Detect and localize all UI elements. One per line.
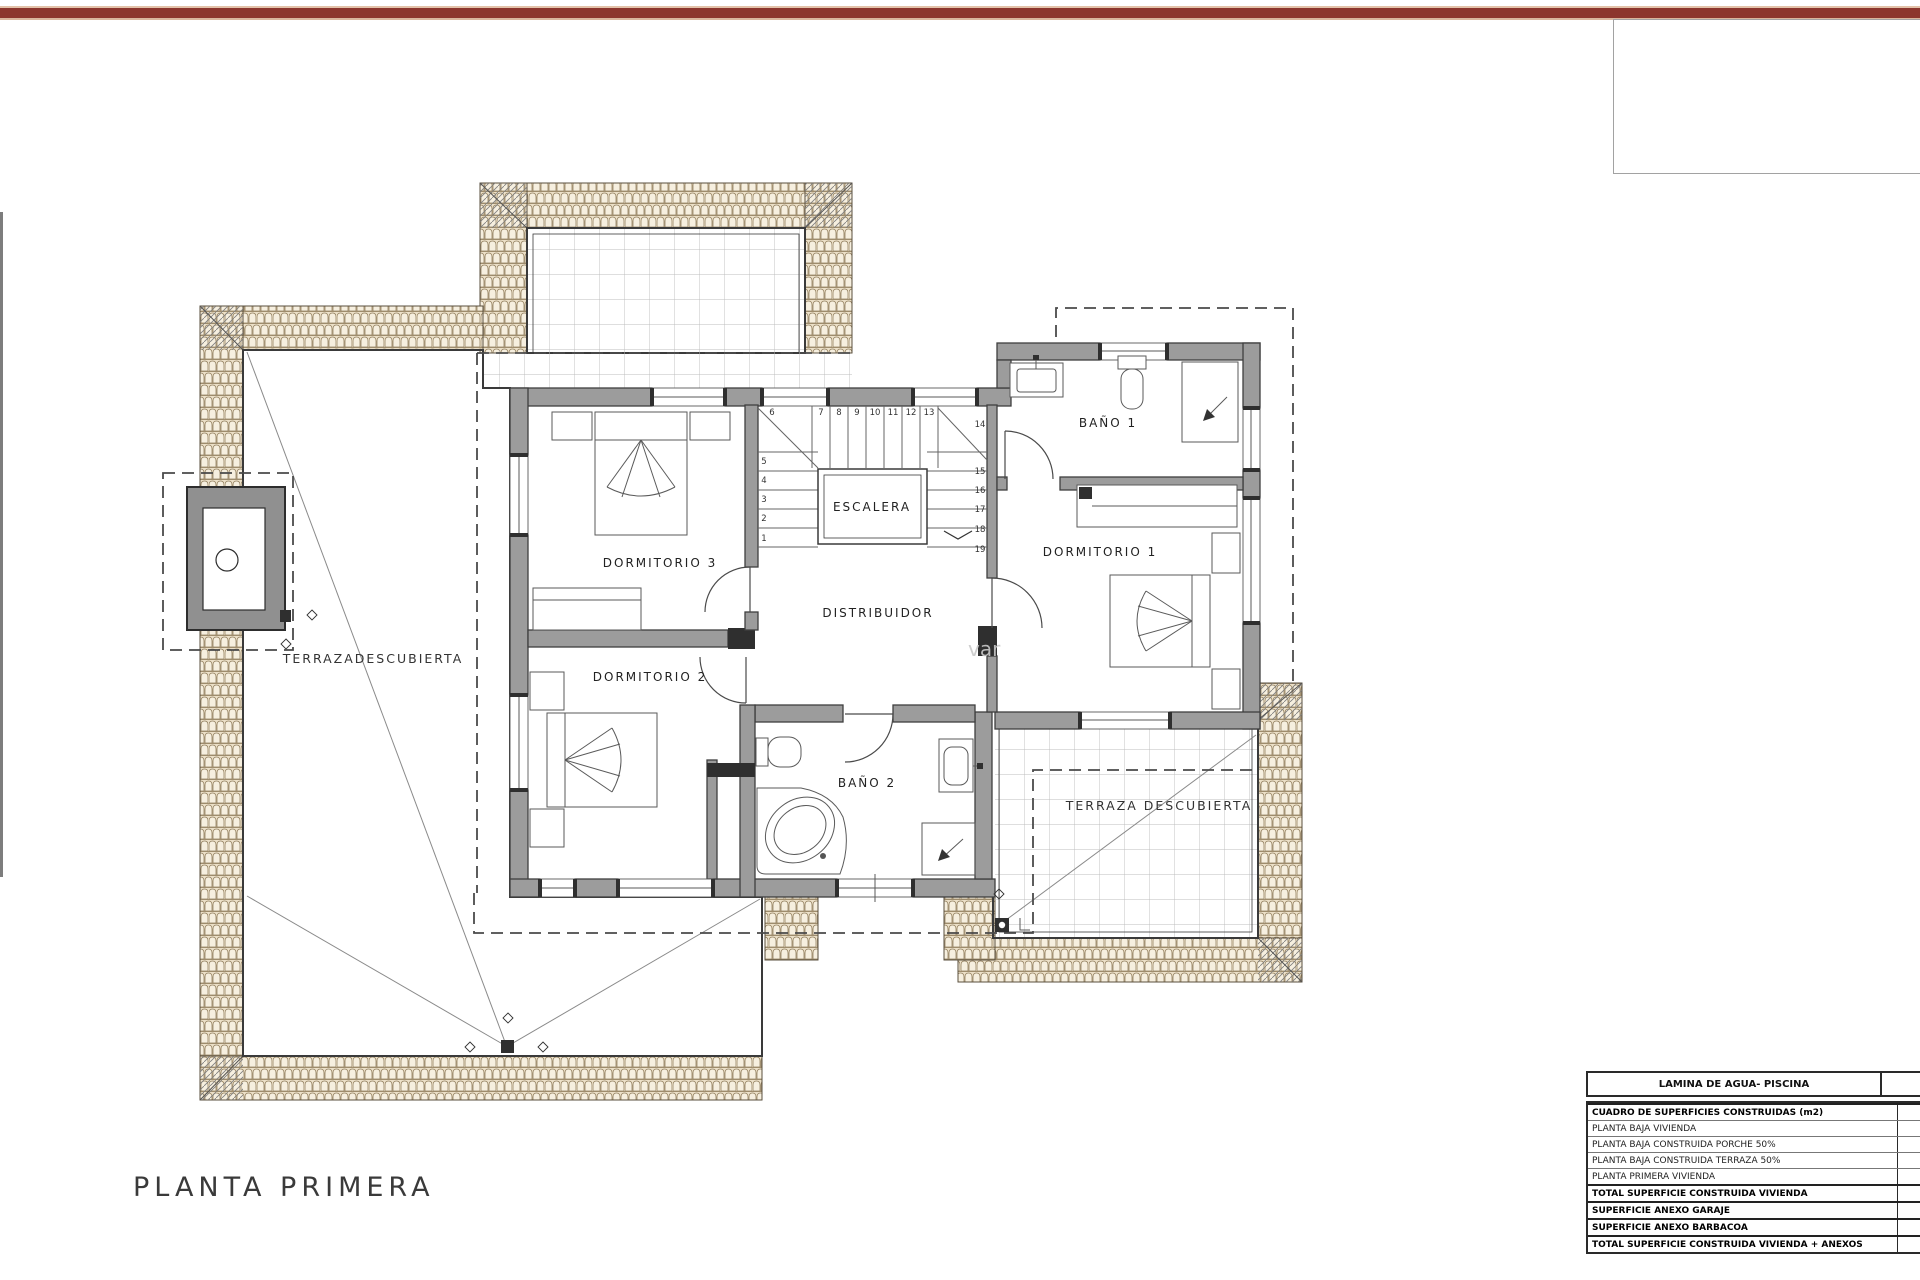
table-row-label: PLANTA BAJA CONSTRUIDA TERRAZA 50% — [1592, 1156, 1780, 1166]
built-surfaces-table: CUADRO DE SUPERFICIES CONSTRUIDAS (m2) P… — [1586, 1101, 1920, 1254]
stair-num: 3 — [761, 495, 766, 505]
table-row: PLANTA BAJA CONSTRUIDA TERRAZA 50% — [1588, 1152, 1920, 1168]
stair-num: 9 — [854, 408, 859, 418]
cabinet-dormitorio3 — [533, 588, 641, 630]
stair-num: 7 — [818, 408, 823, 418]
table-row: CUADRO DE SUPERFICIES CONSTRUIDAS (m2) — [1588, 1103, 1920, 1120]
toilet-icon — [756, 737, 801, 767]
table-row-label: PLANTA BAJA VIVIENDA — [1592, 1124, 1696, 1134]
table-row-label: TOTAL SUPERFICIE CONSTRUIDA VIVIENDA + A… — [1592, 1240, 1863, 1250]
pool-surface-label: LAMINA DE AGUA- PISCINA — [1588, 1073, 1880, 1095]
watermark-text: var — [968, 637, 1001, 661]
stair-num: 11 — [888, 408, 899, 418]
table-row-label: PLANTA PRIMERA VIVIENDA — [1592, 1172, 1715, 1182]
stair-num: 19 — [975, 545, 986, 555]
table-row: PLANTA BAJA CONSTRUIDA PORCHE 50% — [1588, 1136, 1920, 1152]
toilet-icon — [1118, 356, 1146, 409]
table-row: PLANTA BAJA VIVIENDA — [1588, 1120, 1920, 1136]
table-row: SUPERFICIE ANEXO BARBACOA — [1588, 1218, 1920, 1235]
room-label-bano1: BAÑO 1 — [1079, 415, 1137, 430]
stair-num: 8 — [836, 408, 841, 418]
stair-num: 4 — [761, 476, 766, 486]
table-row: SUPERFICIE ANEXO GARAJE — [1588, 1201, 1920, 1218]
wardrobe-dormitorio1 — [1077, 485, 1237, 527]
stair-num: 17 — [975, 505, 986, 515]
chimney-structure — [187, 487, 285, 630]
room-label-bano2: BAÑO 2 — [838, 775, 896, 790]
stair-num: 18 — [975, 525, 986, 535]
table-row-label: SUPERFICIE ANEXO BARBACOA — [1592, 1223, 1748, 1233]
page-title: PLANTA PRIMERA — [133, 1172, 435, 1203]
stair-num: 16 — [975, 486, 986, 496]
stair-num: 14 — [975, 420, 986, 430]
stair-num: 15 — [975, 467, 986, 477]
room-label-dormitorio1: DORMITORIO 1 — [1043, 545, 1157, 559]
stair-num: 1 — [761, 534, 766, 544]
room-label-distribuidor: DISTRIBUIDOR — [822, 606, 933, 620]
table-row: TOTAL SUPERFICIE CONSTRUIDA VIVIENDA — [1588, 1184, 1920, 1201]
pool-surface-box: LAMINA DE AGUA- PISCINA — [1586, 1071, 1920, 1097]
stair-num: 12 — [906, 408, 917, 418]
table-row-label: CUADRO DE SUPERFICIES CONSTRUIDAS (m2) — [1592, 1108, 1823, 1118]
room-label-terraza-izquierda: TERRAZADESCUBIERTA — [282, 651, 464, 666]
room-label-dormitorio3: DORMITORIO 3 — [603, 556, 717, 570]
table-row-label: SUPERFICIE ANEXO GARAJE — [1592, 1206, 1730, 1216]
pool-box-divider — [1880, 1073, 1882, 1095]
room-label-dormitorio2: DORMITORIO 2 — [593, 670, 707, 684]
table-row: PLANTA PRIMERA VIVIENDA — [1588, 1168, 1920, 1184]
table-row-label: PLANTA BAJA CONSTRUIDA PORCHE 50% — [1592, 1140, 1776, 1150]
stair-num: 6 — [769, 408, 774, 418]
stair-num: 10 — [870, 408, 881, 418]
stair-num: 5 — [761, 457, 766, 467]
table-row: TOTAL SUPERFICIE CONSTRUIDA VIVIENDA + A… — [1588, 1235, 1920, 1252]
stair-num: 13 — [924, 408, 935, 418]
stair-num: 2 — [761, 514, 766, 524]
room-label-terraza-derecha: TERRAZA DESCUBIERTA — [1065, 798, 1253, 813]
table-row-label: TOTAL SUPERFICIE CONSTRUIDA VIVIENDA — [1592, 1189, 1808, 1199]
room-label-escalera: ESCALERA — [833, 500, 911, 514]
